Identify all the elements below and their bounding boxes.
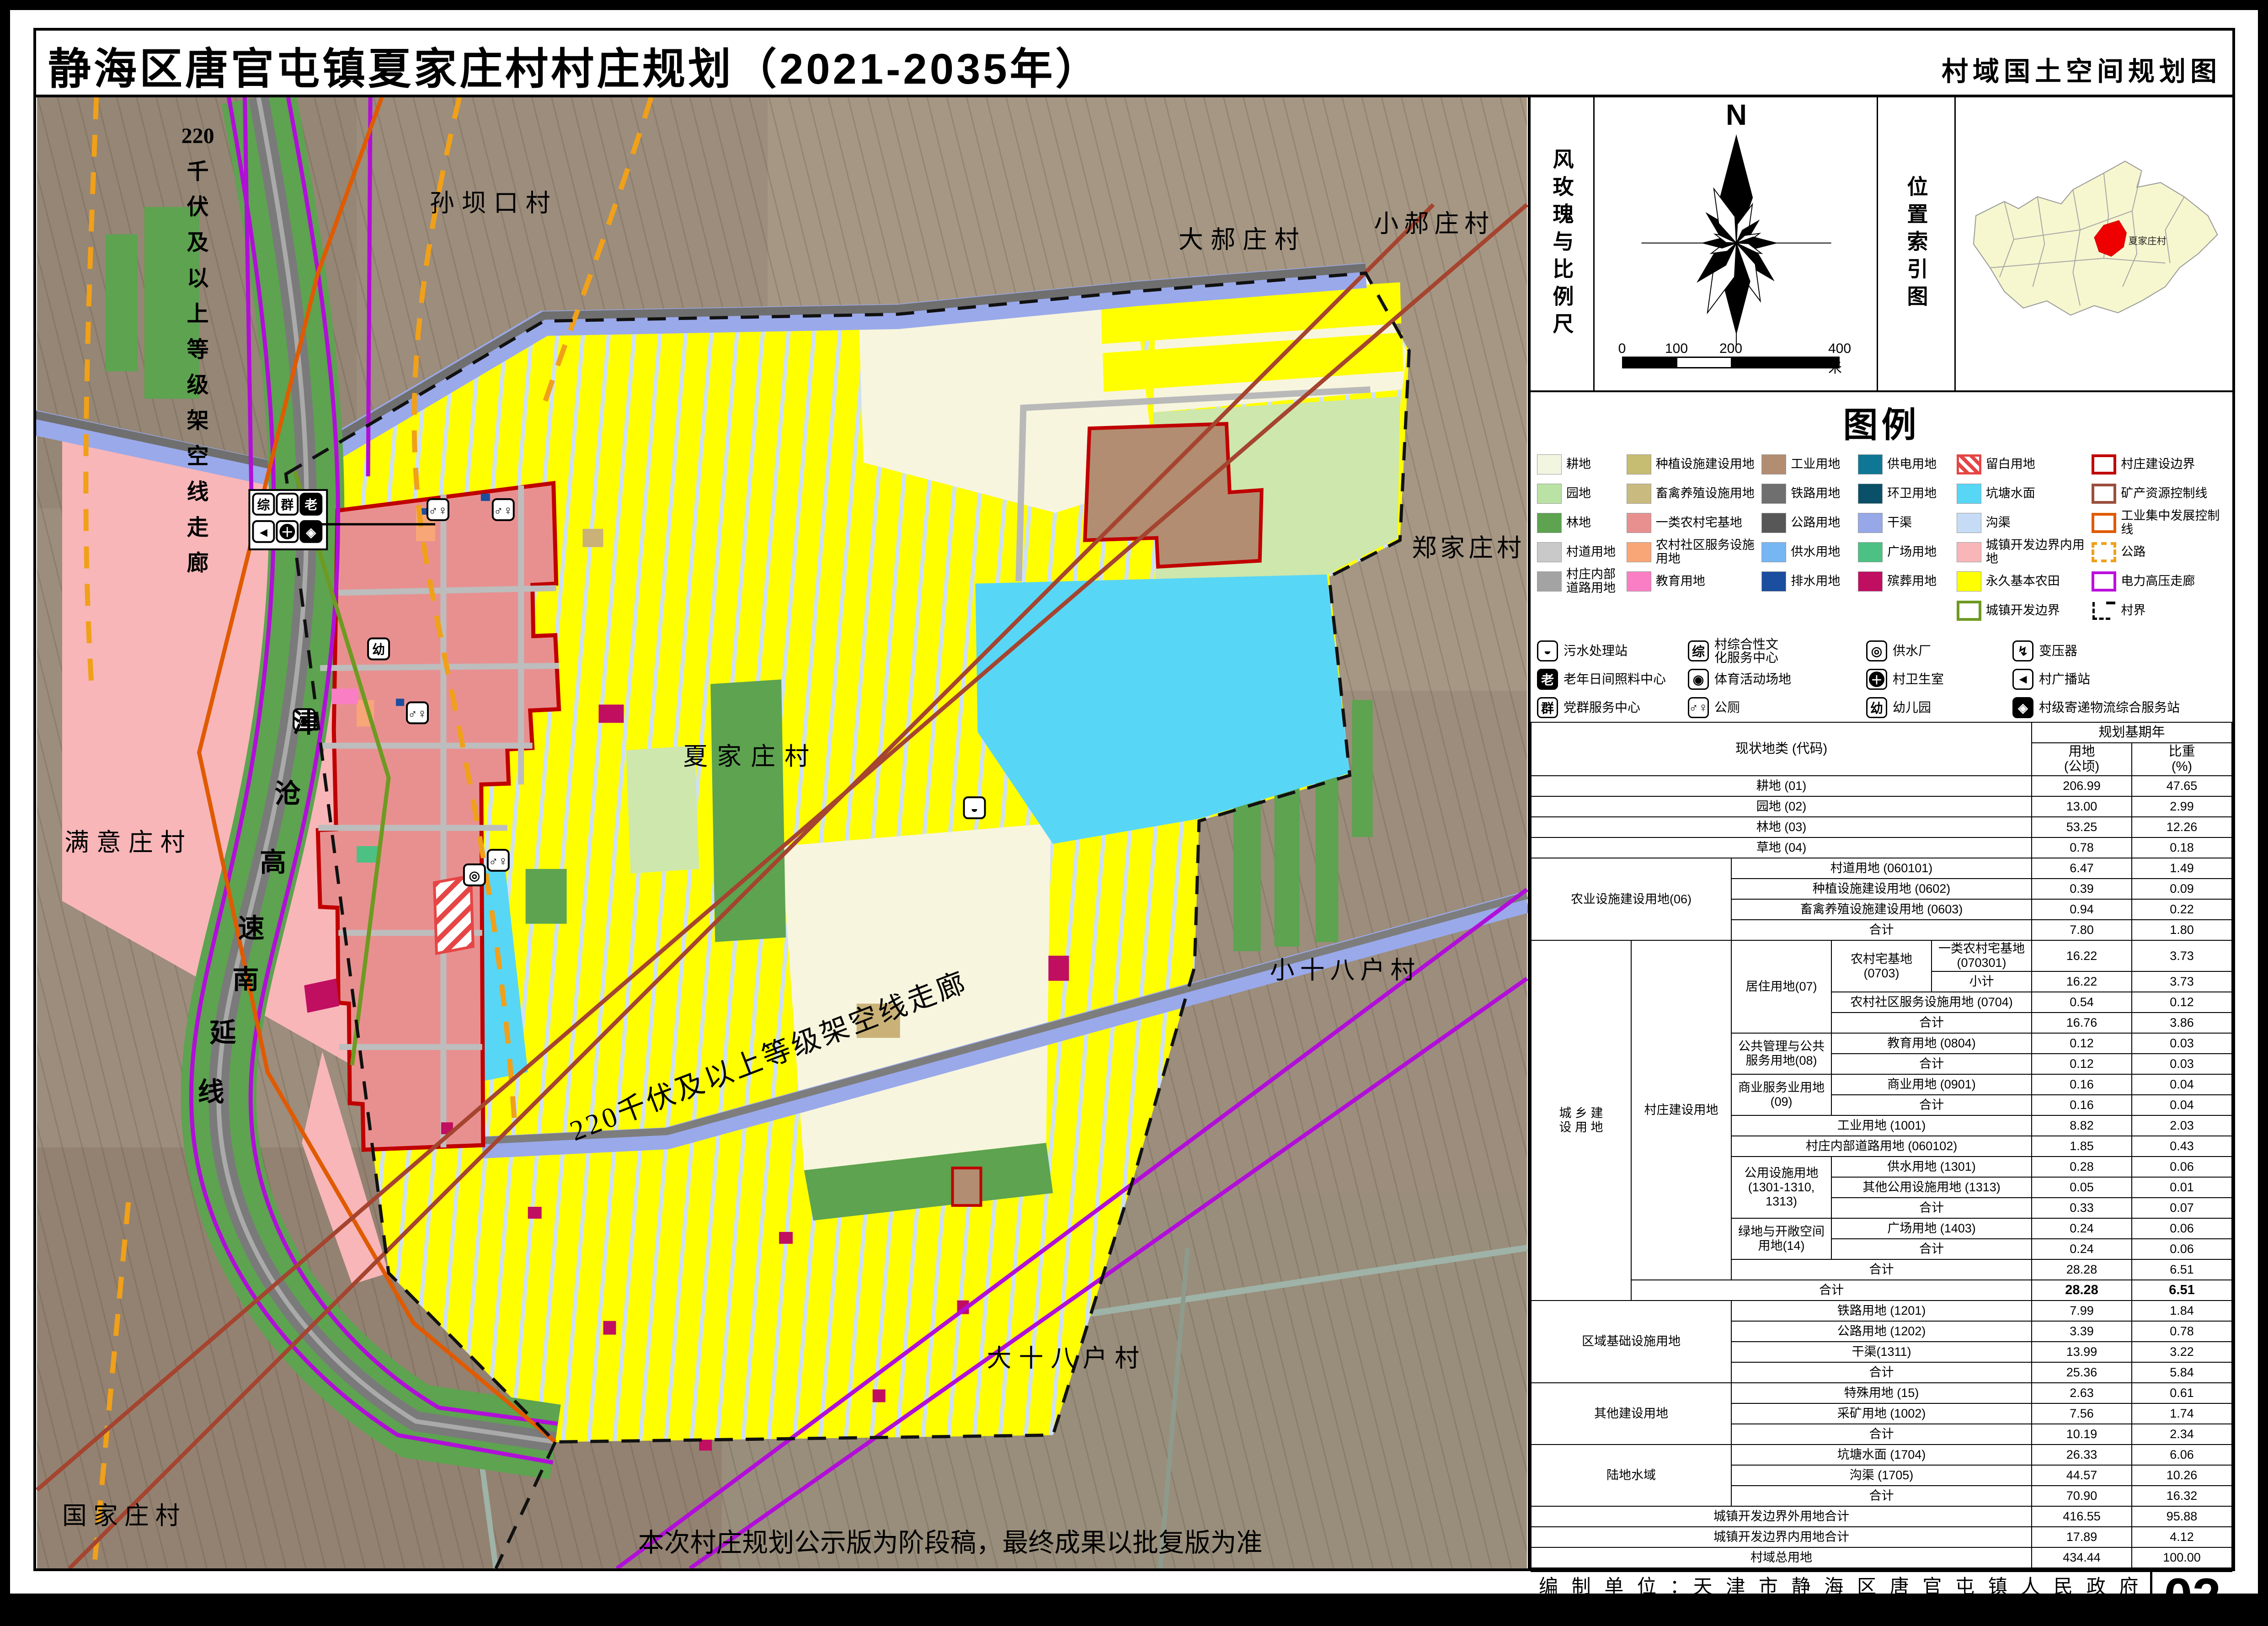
legend-item: 殡葬用地	[1858, 569, 1954, 594]
table-cell: 95.88	[2132, 1506, 2232, 1527]
legend-label: 园地	[1566, 487, 1591, 501]
map-facility-icon: ◈	[300, 521, 321, 542]
table-cell: 村庄内部道路用地 (060102)	[1731, 1136, 2032, 1157]
legend-item: 铁路用地	[1761, 481, 1855, 506]
table-cell: 农业设施建设用地(06)	[1531, 858, 1731, 940]
table-cell: 特殊用地 (15)	[1731, 1383, 2032, 1403]
legend-label: 铁路用地	[1791, 487, 1840, 501]
village-plan-map[interactable]: 综群老◄＋◈♂♀♂♀♂♀◉◎♂♀◒幼 孙坝口村大郝庄村小郝庄村郑家庄村满意庄村夏…	[36, 97, 1528, 1568]
legend-swatch-fill	[1957, 571, 1981, 592]
table-cell: 416.55	[2032, 1506, 2132, 1527]
table-cell: 合计	[1831, 1095, 2032, 1115]
table-cell: 0.24	[2032, 1218, 2132, 1239]
legend-swatch-outline	[2092, 484, 2116, 504]
legend-swatch-fill	[1858, 571, 1883, 592]
table-cell: 采矿用地 (1002)	[1731, 1403, 2032, 1424]
legend-swatch-fill	[1627, 484, 1651, 504]
legend-swatch-corner	[2092, 601, 2116, 621]
legend-swatch-fill	[1761, 542, 1786, 562]
legend-label: 沟渠	[1986, 516, 2011, 530]
page-title: 静海区唐官屯镇夏家庄村村庄规划（2021-2035年）	[48, 34, 1101, 96]
table-cell: 合计	[1731, 1259, 2032, 1280]
legend-item: 畜禽养殖设施用地	[1627, 481, 1759, 506]
table-cell: 广场用地 (1403)	[1831, 1218, 2032, 1239]
table-cell: 3.22	[2132, 1342, 2232, 1362]
legend-item: 干渠	[1858, 510, 1954, 536]
map-label: 大十八户村	[987, 1345, 1147, 1372]
table-cell: 17.89	[2032, 1527, 2132, 1547]
legend-item: 村界	[2092, 598, 2229, 624]
table-cell: 0.06	[2132, 1239, 2232, 1259]
location-index-map[interactable]: 夏家庄村	[1962, 144, 2227, 345]
table-cell: 0.16	[2032, 1074, 2132, 1095]
svg-text:＋: ＋	[281, 525, 294, 539]
legend-item: 村庄内部道路用地	[1537, 569, 1624, 594]
map-label: 国家庄村	[62, 1502, 187, 1530]
legend-label: 工业用地	[1791, 458, 1840, 471]
table-cell: 园地 (02)	[1531, 796, 2032, 817]
村卫生室-icon: ＋	[1866, 669, 1887, 690]
legend-label: 坑塘水面	[1986, 487, 2035, 501]
legend-swatch-dashed	[2092, 542, 2116, 562]
table-cell: 6.51	[2132, 1280, 2232, 1301]
map-label: 夏家庄村	[683, 743, 818, 770]
table-cell: 7.99	[2032, 1301, 2132, 1321]
scale-tick: 400 米	[1828, 341, 1851, 377]
table-cell: 0.09	[2132, 879, 2232, 899]
table-cell: 0.61	[2132, 1383, 2232, 1403]
table-cell: 合计	[1831, 1013, 2032, 1033]
table-cell: 6.47	[2032, 858, 2132, 879]
legend-item: 供电用地	[1858, 452, 1954, 477]
table-cell: 2.99	[2132, 796, 2232, 817]
map-facility-icon: 群	[277, 494, 298, 515]
table-cell: 6.51	[2132, 1259, 2232, 1280]
table-cell: 4.12	[2132, 1527, 2232, 1547]
table-cell: 合计	[1731, 920, 2032, 940]
orientation-row: 风玫瑰与比例尺 N 0100200400 米	[1531, 97, 2232, 392]
table-cell: 干渠(1311)	[1731, 1342, 2032, 1362]
legend-item: 一类农村宅基地	[1627, 510, 1759, 536]
svg-text:老: 老	[304, 498, 317, 512]
table-cell: 合计	[1631, 1280, 2032, 1301]
table-cell: 1.84	[2132, 1301, 2232, 1321]
legend-swatch-fill	[1537, 542, 1562, 562]
facility-item: ◒污水处理站	[1537, 639, 1688, 663]
legend-item: 农村社区服务设施用地	[1627, 539, 1759, 565]
index-map-cell: 夏家庄村	[1956, 97, 2232, 390]
变压器-icon: ↯	[2012, 640, 2033, 661]
content-frame: 静海区唐官屯镇夏家庄村村庄规划（2021-2035年） 村域国土空间规划图	[33, 28, 2235, 1571]
table-cell: 比重(%)	[2132, 743, 2232, 776]
facility-label: 公厕	[1714, 701, 1740, 714]
legend-item: 公路用地	[1761, 510, 1855, 536]
table-cell: 16.76	[2032, 1013, 2132, 1033]
table-cell: 坑塘水面 (1704)	[1731, 1445, 2032, 1465]
table-cell: 1.80	[2132, 920, 2232, 940]
table-cell: 10.26	[2132, 1465, 2232, 1486]
legend-label: 供电用地	[1887, 458, 1937, 471]
table-cell: 铁路用地 (1201)	[1731, 1301, 2032, 1321]
page-number-box: 02	[2150, 1572, 2232, 1621]
facility-item: ↯变压器	[2012, 639, 2227, 663]
facility-label: 体育活动场地	[1714, 672, 1791, 686]
map-facility-icon: ♂♀	[427, 499, 448, 520]
info-panel: 风玫瑰与比例尺 N 0100200400 米	[1528, 97, 2232, 1568]
table-cell: 0.04	[2132, 1074, 2232, 1095]
供水厂-icon: ◎	[1866, 640, 1887, 661]
table-cell: 城 乡 建设 用 地	[1531, 940, 1631, 1301]
scale-ticks: 0100200400 米	[1622, 341, 1851, 357]
table-cell: 村域总用地	[1531, 1547, 2032, 1568]
map-label: 小郝庄村	[1374, 210, 1494, 238]
table-cell: 陆地水域	[1531, 1445, 1731, 1506]
table-cell: 434.44	[2032, 1547, 2132, 1568]
legend-item: 电力高压走廊	[2092, 569, 2229, 594]
facility-label: 村综合性文化服务中心	[1714, 638, 1778, 665]
table-cell: 16.32	[2132, 1486, 2232, 1506]
svg-text:群: 群	[281, 498, 294, 512]
legend-swatch-hatch	[1957, 454, 1981, 474]
table-cell: 3.39	[2032, 1321, 2132, 1342]
map-label: 小十八户村	[1270, 957, 1421, 984]
svg-text:♂♀: ♂♀	[408, 706, 427, 720]
体育活动场地-icon: ◉	[1688, 669, 1709, 690]
legend-label: 供水用地	[1791, 545, 1840, 559]
scale-segment	[1623, 358, 1677, 367]
table-cell: 公共管理与公共服务用地(08)	[1731, 1033, 1831, 1074]
table-cell: 0.06	[2132, 1157, 2232, 1177]
legend-swatch-fill	[1761, 454, 1786, 474]
table-cell: 3.73	[2132, 940, 2232, 971]
legend-label: 耕地	[1566, 458, 1591, 471]
legend-item: 种植设施建设用地	[1627, 452, 1759, 477]
table-cell: 53.25	[2032, 817, 2132, 837]
landuse-table: 现状地类 (代码)规划基期年用地(公顷)比重(%)耕地 (01)206.9947…	[1531, 722, 2232, 1568]
facility-label: 村广播站	[2039, 672, 2090, 686]
table-cell: 1.74	[2132, 1403, 2232, 1424]
table-cell: 0.28	[2032, 1157, 2132, 1177]
legend-swatch-fill	[1627, 542, 1651, 562]
legend-label: 留白用地	[1986, 458, 2035, 471]
table-cell: 2.63	[2032, 1383, 2132, 1403]
reserved-land	[434, 876, 473, 954]
facility-label: 污水处理站	[1564, 644, 1628, 657]
legend-swatch-outline	[2092, 571, 2116, 592]
legend-label: 永久基本农田	[1986, 575, 2060, 588]
table-cell: 农村社区服务设施用地 (0704)	[1831, 992, 2032, 1013]
table-cell: 0.05	[2032, 1177, 2132, 1198]
facility-label: 变压器	[2039, 644, 2077, 657]
legend-item: 工业集中发展控制线	[2092, 510, 2229, 536]
table-cell: 0.12	[2032, 1033, 2132, 1054]
map-label: 大郝庄村	[1179, 226, 1307, 254]
facility-item: ◄村广播站	[2012, 667, 2227, 691]
legend-swatch-fill	[1858, 484, 1883, 504]
table-cell: 0.22	[2132, 899, 2232, 920]
facility-item: 幼幼儿园	[1866, 696, 2012, 720]
title-block: 编 制 单 位 ：天 津 市 静 海 区 唐 官 屯 镇 人 民 政 府 制 图…	[1531, 1568, 2232, 1621]
svg-text:♂♀: ♂♀	[489, 854, 508, 868]
table-cell: 商业服务业用地(09)	[1731, 1074, 1831, 1115]
table-cell: 3.73	[2132, 971, 2232, 992]
table-cell: 合计	[1731, 1362, 2032, 1383]
村广播站-icon: ◄	[2012, 669, 2033, 690]
table-cell: 2.03	[2132, 1115, 2232, 1136]
table-cell: 0.78	[2132, 1321, 2232, 1342]
legend-swatch-fill	[1858, 454, 1883, 474]
legend-item: 城镇开发边界内用地	[1957, 539, 2089, 565]
legend-label: 畜禽养殖设施用地	[1656, 487, 1755, 501]
老年日间照料中心-icon: 老	[1537, 669, 1558, 690]
table-cell: 6.06	[2132, 1445, 2232, 1465]
north-label: N	[1726, 98, 1747, 131]
table-cell: 28.28	[2032, 1259, 2132, 1280]
map-facility-icon: 综	[253, 494, 274, 515]
村综合性文 化服务中心-icon: 综	[1688, 640, 1709, 661]
legend-swatch-fill	[1761, 571, 1786, 592]
table-cell: 用地(公顷)	[2032, 743, 2132, 776]
facility-label: 供水厂	[1893, 644, 1931, 657]
facility-item: ＋村卫生室	[1866, 667, 2012, 691]
sheet-title: 村域国土空间规划图	[1942, 50, 2221, 88]
legend-swatch-fill	[1627, 513, 1651, 533]
table-cell: 草地 (04)	[1531, 837, 2032, 858]
svg-text:◎: ◎	[469, 869, 480, 883]
legend-swatch-outline	[2092, 513, 2116, 533]
legend-item: 留白用地	[1957, 452, 2089, 477]
windrose-label: 风玫瑰与比例尺	[1547, 148, 1577, 340]
table-cell: 城镇开发边界内用地合计	[1531, 1527, 2032, 1547]
legend-item: 园地	[1537, 481, 1624, 506]
table-cell: 区域基础设施用地	[1531, 1301, 1731, 1383]
legend-item: 公路	[2092, 539, 2229, 565]
legend-label: 干渠	[1887, 516, 1912, 530]
table-cell: 0.07	[2132, 1198, 2232, 1218]
scale-segment	[1677, 358, 1731, 367]
facility-item: ◈村级寄递物流综合服务站	[2012, 696, 2227, 720]
table-cell: 0.94	[2032, 899, 2132, 920]
legend-label: 城镇开发边界	[1986, 604, 2060, 618]
table-cell: 0.12	[2032, 1054, 2132, 1074]
facility-label: 幼儿园	[1893, 701, 1931, 714]
table-cell: 13.00	[2032, 796, 2132, 817]
legend-label: 农村社区服务设施用地	[1656, 538, 1759, 565]
table-cell: 206.99	[2032, 776, 2132, 796]
facility-legend: ◒污水处理站老老年日间照料中心群党群服务中心综村综合性文化服务中心◉体育活动场地…	[1537, 639, 2229, 721]
legend-item: 城镇开发边界	[1957, 598, 2089, 624]
table-cell: 0.43	[2132, 1136, 2232, 1157]
facility-label: 党群服务中心	[1564, 701, 1640, 714]
table-cell: 5.84	[2132, 1362, 2232, 1383]
table-cell: 16.22	[2032, 971, 2132, 992]
legend-item: 供水用地	[1761, 539, 1855, 565]
table-cell: 农村宅基地(0703)	[1831, 940, 1932, 992]
title-bar: 静海区唐官屯镇夏家庄村村庄规划（2021-2035年） 村域国土空间规划图	[36, 31, 2232, 97]
map-facility-icon: ♂♀	[493, 499, 514, 520]
facility-label: 村级寄递物流综合服务站	[2039, 701, 2180, 714]
table-cell: 12.26	[2132, 817, 2232, 837]
table-cell: 8.82	[2032, 1115, 2132, 1136]
legend-swatch-outline	[2092, 454, 2116, 474]
map-facility-icon: ♂♀	[488, 850, 509, 871]
index-highlight-label: 夏家庄村	[2128, 236, 2166, 246]
table-cell: 1.85	[2032, 1136, 2132, 1157]
table-cell: 村道用地 (060101)	[1731, 858, 2032, 879]
legend-item: 环卫用地	[1858, 481, 1954, 506]
scale-tick: 100	[1665, 341, 1688, 357]
map-facility-icon: 幼	[368, 639, 389, 660]
table-cell: 小计	[1932, 971, 2032, 992]
svg-text:综: 综	[257, 497, 270, 512]
table-cell: 现状地类 (代码)	[1531, 722, 2032, 776]
legend-swatch-fill	[1761, 513, 1786, 533]
legend-item: 沟渠	[1957, 510, 2089, 536]
page-number: 02	[2164, 1567, 2221, 1626]
table-cell: 沟渠 (1705)	[1731, 1465, 2032, 1486]
table-cell: 绿地与开敞空间用地(14)	[1731, 1218, 1831, 1259]
legend-swatch-fill	[1627, 571, 1651, 592]
windrose-label-cell: 风玫瑰与比例尺	[1531, 97, 1595, 390]
table-cell: 44.57	[2032, 1465, 2132, 1486]
table-cell: 0.33	[2032, 1198, 2132, 1218]
table-cell: 合计	[1831, 1054, 2032, 1074]
facility-label: 村卫生室	[1893, 672, 1944, 686]
scale-bar: 0100200400 米	[1622, 341, 1851, 373]
table-cell: 林地 (03)	[1531, 817, 2032, 837]
legend-item: 村道用地	[1537, 539, 1624, 565]
table-cell: 村庄建设用地	[1631, 940, 1731, 1280]
map-facility-icon: ＋	[277, 521, 298, 542]
svg-text:◒: ◒	[971, 801, 978, 816]
map-facility-icon: ◒	[964, 797, 985, 818]
map-canvas[interactable]: 综群老◄＋◈♂♀♂♀♂♀◉◎♂♀◒幼 孙坝口村大郝庄村小郝庄村郑家庄村满意庄村夏…	[36, 97, 1528, 1568]
table-cell: 居住用地(07)	[1731, 940, 1831, 1033]
table-cell: 供水用地 (1301)	[1831, 1157, 2032, 1177]
table-cell: 0.54	[2032, 992, 2132, 1013]
title-block-text: 编 制 单 位 ：天 津 市 静 海 区 唐 官 屯 镇 人 民 政 府 制 图…	[1531, 1572, 2150, 1621]
legend-label: 工业集中发展控制线	[2121, 509, 2229, 536]
table-cell: 7.80	[2032, 920, 2132, 940]
wind-rose: N	[1595, 97, 1878, 353]
legend-swatch-fill	[1537, 484, 1562, 504]
table-cell: 16.22	[2032, 940, 2132, 971]
legend-label: 林地	[1566, 516, 1591, 530]
legend-item: 坑塘水面	[1957, 481, 2089, 506]
table-cell: 2.34	[2132, 1424, 2232, 1445]
公厕-icon: ♂♀	[1688, 697, 1709, 718]
table-cell: 0.04	[2132, 1095, 2232, 1115]
legend-label: 电力高压走廊	[2121, 575, 2195, 588]
facility-item: 老老年日间照料中心	[1537, 667, 1688, 691]
legend-label: 教育用地	[1656, 575, 1705, 588]
table-cell: 70.90	[2032, 1486, 2132, 1506]
scale-segment	[1731, 358, 1838, 367]
facility-item: ♂♀公厕	[1688, 696, 1866, 720]
table-cell: 0.01	[2132, 1177, 2232, 1198]
table-cell: 公路用地 (1202)	[1731, 1321, 2032, 1342]
legend-label: 矿产资源控制线	[2121, 487, 2207, 501]
table-cell: 0.18	[2132, 837, 2232, 858]
table-cell: 合计	[1731, 1486, 2032, 1506]
table-cell: 25.36	[2032, 1362, 2132, 1383]
table-cell: 一类农村宅基地(070301)	[1932, 940, 2032, 971]
legend-swatch-fill	[1957, 513, 1981, 533]
table-cell: 13.99	[2032, 1342, 2132, 1362]
legend: 耕地园地林地村道用地村庄内部道路用地种植设施建设用地畜禽养殖设施用地一类农村宅基…	[1537, 452, 2229, 634]
legend-item: 广场用地	[1858, 539, 1954, 565]
legend-swatch-fill	[1761, 484, 1786, 504]
table-cell: 0.03	[2132, 1033, 2232, 1054]
plan-sheet: 静海区唐官屯镇夏家庄村村庄规划（2021-2035年） 村域国土空间规划图	[10, 10, 2258, 1594]
table-cell: 商业用地 (0901)	[1831, 1074, 2032, 1095]
table-cell: 合计	[1731, 1424, 2032, 1445]
table-cell: 100.00	[2132, 1547, 2232, 1568]
scale-bar-segments	[1622, 357, 1840, 368]
table-cell: 10.19	[2032, 1424, 2132, 1445]
legend-label: 环卫用地	[1887, 487, 1937, 501]
legend-swatch-fill	[1537, 513, 1562, 533]
facility-item: ◎供水厂	[1866, 639, 2012, 663]
table-cell: 公用设施用地(1301-1310,1313)	[1731, 1157, 1831, 1218]
legend-label: 种植设施建设用地	[1656, 458, 1755, 471]
legend-item: 永久基本农田	[1957, 569, 2089, 594]
table-cell: 合计	[1831, 1239, 2032, 1259]
table-cell: 0.06	[2132, 1218, 2232, 1239]
table-cell: 47.65	[2132, 776, 2232, 796]
landuse-table-wrap: 现状地类 (代码)规划基期年用地(公顷)比重(%)耕地 (01)206.9947…	[1531, 722, 2232, 1568]
table-cell: 28.28	[2032, 1280, 2132, 1301]
facility-item: 综村综合性文化服务中心	[1688, 639, 1866, 663]
map-disclaimer: 本次村庄规划公示版为阶段稿，最终成果以批复版为准	[638, 1529, 1263, 1557]
table-cell: 7.56	[2032, 1403, 2132, 1424]
legend-label: 广场用地	[1887, 545, 1937, 559]
index-label-cell: 位置索引图	[1878, 97, 1956, 390]
table-cell: 工业用地 (1001)	[1731, 1115, 2032, 1136]
legend-swatch-fill	[1957, 542, 1981, 562]
map-facility-icon: ◎	[464, 864, 485, 885]
legend-label: 村庄内部道路用地	[1566, 568, 1624, 595]
table-cell: 3.86	[2132, 1013, 2232, 1033]
table-cell: 0.16	[2032, 1095, 2132, 1115]
legend-item: 村庄建设边界	[2092, 452, 2229, 477]
table-cell: 0.24	[2032, 1239, 2132, 1259]
windrose-cell: N 0100200400 米	[1595, 97, 1878, 390]
table-cell: 1.49	[2132, 858, 2232, 879]
table-cell: 0.78	[2032, 837, 2132, 858]
table-cell: 26.33	[2032, 1445, 2132, 1465]
scale-tick: 200	[1719, 341, 1742, 357]
legend-label: 排水用地	[1791, 575, 1840, 588]
幼儿园-icon: 幼	[1866, 697, 1887, 718]
污水处理站-icon: ◒	[1537, 640, 1558, 661]
agency-line: 编 制 单 位 ：天 津 市 静 海 区 唐 官 屯 镇 人 民 政 府	[1539, 1575, 2150, 1599]
党群服务中心-icon: 群	[1537, 697, 1558, 718]
facility-item: ◉体育活动场地	[1688, 667, 1866, 691]
scale-tick: 0	[1618, 341, 1626, 357]
legend-item: 排水用地	[1761, 569, 1855, 594]
svg-text:◄: ◄	[257, 525, 270, 539]
legend-swatch-fill	[1537, 454, 1562, 474]
legend-title: 图例	[1531, 392, 2232, 452]
legend-swatch-fill	[1627, 454, 1651, 474]
legend-swatch-fill	[1957, 484, 1981, 504]
svg-text:♂♀: ♂♀	[494, 503, 513, 517]
legend-item: 耕地	[1537, 452, 1624, 477]
date-line: 制 图 日 期 ： 2 0 2 5 年 0 8 月	[1539, 1599, 2150, 1623]
table-cell: 教育用地 (0804)	[1831, 1033, 2032, 1054]
legend-label: 殡葬用地	[1887, 575, 1937, 588]
